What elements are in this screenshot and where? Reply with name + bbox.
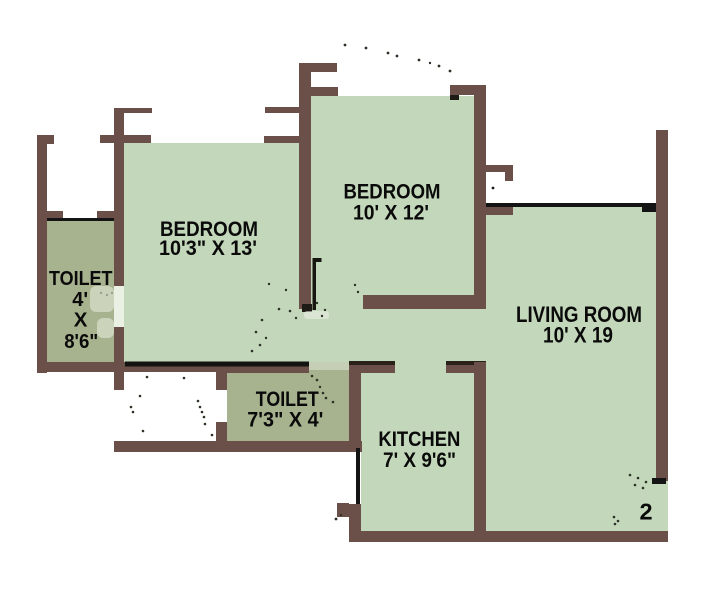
svg-text:KITCHEN: KITCHEN bbox=[378, 428, 460, 451]
svg-text:7'3" X 4': 7'3" X 4' bbox=[247, 409, 323, 432]
svg-text:BEDROOM: BEDROOM bbox=[344, 181, 441, 204]
svg-text:8'6": 8'6" bbox=[64, 331, 98, 353]
svg-text:X: X bbox=[74, 309, 88, 332]
svg-text:10' X 12': 10' X 12' bbox=[353, 202, 429, 225]
svg-text:TOILET: TOILET bbox=[49, 268, 113, 290]
svg-text:2: 2 bbox=[640, 499, 653, 525]
svg-text:10'3" X 13': 10'3" X 13' bbox=[159, 237, 257, 260]
svg-text:7' X 9'6": 7' X 9'6" bbox=[383, 449, 456, 472]
svg-text:10' X 19: 10' X 19 bbox=[543, 323, 613, 348]
